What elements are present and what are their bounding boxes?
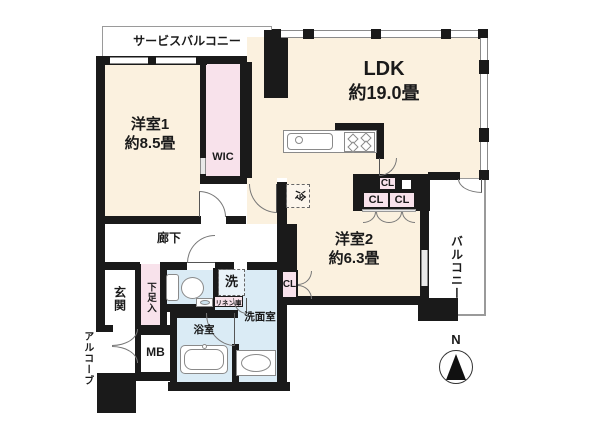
hand-basin: [196, 298, 213, 307]
wall: [97, 262, 140, 270]
washer-space: 洗: [218, 269, 245, 296]
washroom-label: 洗面室: [237, 311, 283, 325]
wic-label: WIC: [206, 150, 240, 166]
wall: [479, 128, 489, 142]
wall: [376, 123, 384, 159]
closet-room2: CL: [281, 270, 298, 299]
balcony-label: バルコニー: [447, 222, 465, 312]
wall: [135, 372, 175, 381]
ldk-label: LDK約19.0畳: [328, 56, 440, 106]
toilet-bowl-icon: [181, 277, 204, 299]
shoe-cabinet-label: 下足入: [142, 272, 158, 324]
compass: N: [436, 333, 476, 387]
wall: [96, 56, 105, 332]
closet-top: CL: [378, 176, 397, 191]
wall: [303, 29, 314, 39]
closet-row-left: CL: [362, 191, 390, 209]
bathtub-inner: [184, 349, 224, 370]
washer-label: 洗: [225, 274, 238, 290]
entrance-label: 玄関: [110, 276, 128, 322]
kitchen-sink-icon: [287, 133, 333, 150]
closet-label: CL: [369, 194, 384, 206]
meter-box-label: MB: [141, 333, 170, 372]
wall: [240, 62, 252, 178]
refrigerator-label: 冷: [291, 191, 305, 202]
wall: [97, 216, 201, 224]
wall: [247, 262, 288, 270]
door-swing-icon: [199, 191, 226, 217]
wall: [135, 264, 141, 330]
closet-label: CL: [395, 194, 410, 206]
window: [110, 57, 148, 64]
floor-plan: 冷 洗 リネン庫 CL CL CL CL: [0, 0, 600, 424]
service-balcony-label: サービスバルコニー: [102, 26, 272, 57]
wall: [371, 29, 381, 39]
wall: [226, 216, 246, 224]
label-text: MB: [146, 345, 165, 360]
label-text: 廊下: [157, 231, 181, 246]
label-text: LDK約19.0畳: [348, 57, 419, 105]
wall: [441, 29, 451, 39]
wall: [272, 29, 281, 39]
refrigerator-space: 冷: [286, 184, 310, 208]
closet-top-label: CL: [381, 178, 394, 189]
bathtub-icon: [180, 345, 228, 374]
label-text: 下足入: [144, 282, 156, 314]
label-text: アルコーブ: [80, 331, 93, 386]
basin-oval-icon: [200, 300, 210, 305]
window: [480, 38, 488, 178]
north-arrow-icon: [446, 354, 466, 380]
label-text: 玄関: [112, 286, 127, 312]
bathroom-label: 浴室: [186, 324, 222, 338]
wall: [287, 224, 297, 272]
compass-north-label: N: [436, 333, 476, 348]
wall: [479, 60, 489, 74]
stove-icon: [344, 132, 375, 152]
room2-label: 洋室2約6.3畳: [298, 228, 410, 272]
wall: [166, 262, 187, 270]
label-text: 洗面室: [244, 311, 276, 324]
label-text: バルコニー: [449, 235, 464, 300]
wall: [97, 325, 113, 332]
closet-top-white: [400, 178, 413, 191]
structural-pillar: [97, 373, 136, 413]
bath-faucet-icon: [202, 344, 207, 349]
alcove-label: アルコーブ: [79, 322, 94, 394]
hallway-label: 廊下: [150, 230, 188, 246]
label-text: WIC: [212, 151, 233, 165]
closet-row-right: CL: [388, 191, 416, 209]
label-text: 浴室: [194, 324, 215, 337]
wall: [200, 176, 247, 184]
wall: [168, 382, 290, 391]
toilet-tank-icon: [166, 274, 179, 301]
closet-label: CL: [283, 279, 296, 290]
label-text: N: [451, 332, 460, 348]
label-text: サービスバルコニー: [133, 34, 241, 49]
vanity-basin-icon: [241, 354, 271, 372]
wall: [428, 172, 460, 180]
label-text: 洋室1約8.5畳: [125, 116, 176, 154]
window: [156, 57, 196, 64]
room1-label: 洋室1約8.5畳: [100, 113, 200, 157]
window: [421, 250, 428, 286]
faucet-icon: [295, 136, 303, 144]
label-text: 洋室2約6.3畳: [329, 231, 380, 269]
